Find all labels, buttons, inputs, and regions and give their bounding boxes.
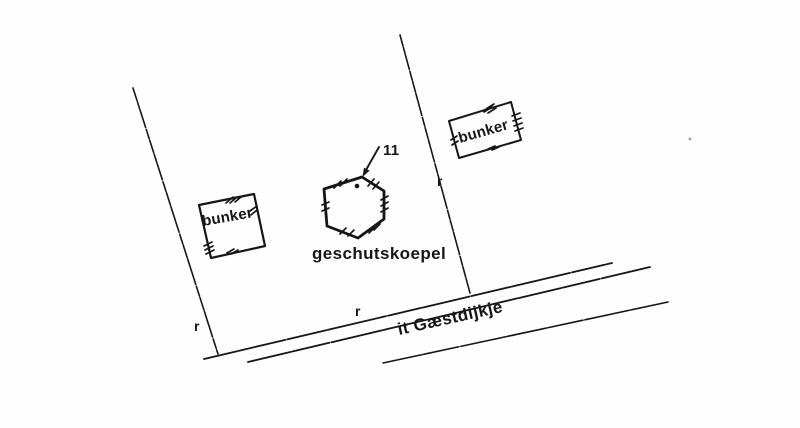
gun-turret: geschutskoepel xyxy=(312,177,446,263)
gun-turret-dot xyxy=(355,184,360,189)
boundary-lines xyxy=(133,35,470,354)
turret-number-annotation: 11 xyxy=(363,142,400,177)
scanned-sketch-map: it Gæstdijkje bunker bunker xyxy=(0,0,800,428)
road-name-label: it Gæstdijkje xyxy=(396,297,505,339)
sketch-map-canvas: it Gæstdijkje bunker bunker xyxy=(0,0,800,428)
bunker-left: bunker xyxy=(199,194,265,258)
bunker-right-label: bunker xyxy=(456,116,510,146)
r-marker-left: r xyxy=(194,318,200,334)
gun-turret-label: geschutskoepel xyxy=(312,244,446,263)
turret-number-label: 11 xyxy=(383,142,399,159)
r-marker-right: r xyxy=(437,173,443,189)
annotation-arrowhead xyxy=(363,168,370,177)
r-marker-middle: r xyxy=(355,303,361,319)
bunker-right: bunker xyxy=(449,102,523,158)
scan-speck xyxy=(689,138,692,141)
road-edge-top xyxy=(204,263,612,359)
annotation-arrow-line xyxy=(366,147,379,170)
bunker-left-label: bunker xyxy=(201,204,254,230)
road: it Gæstdijkje xyxy=(204,263,668,363)
